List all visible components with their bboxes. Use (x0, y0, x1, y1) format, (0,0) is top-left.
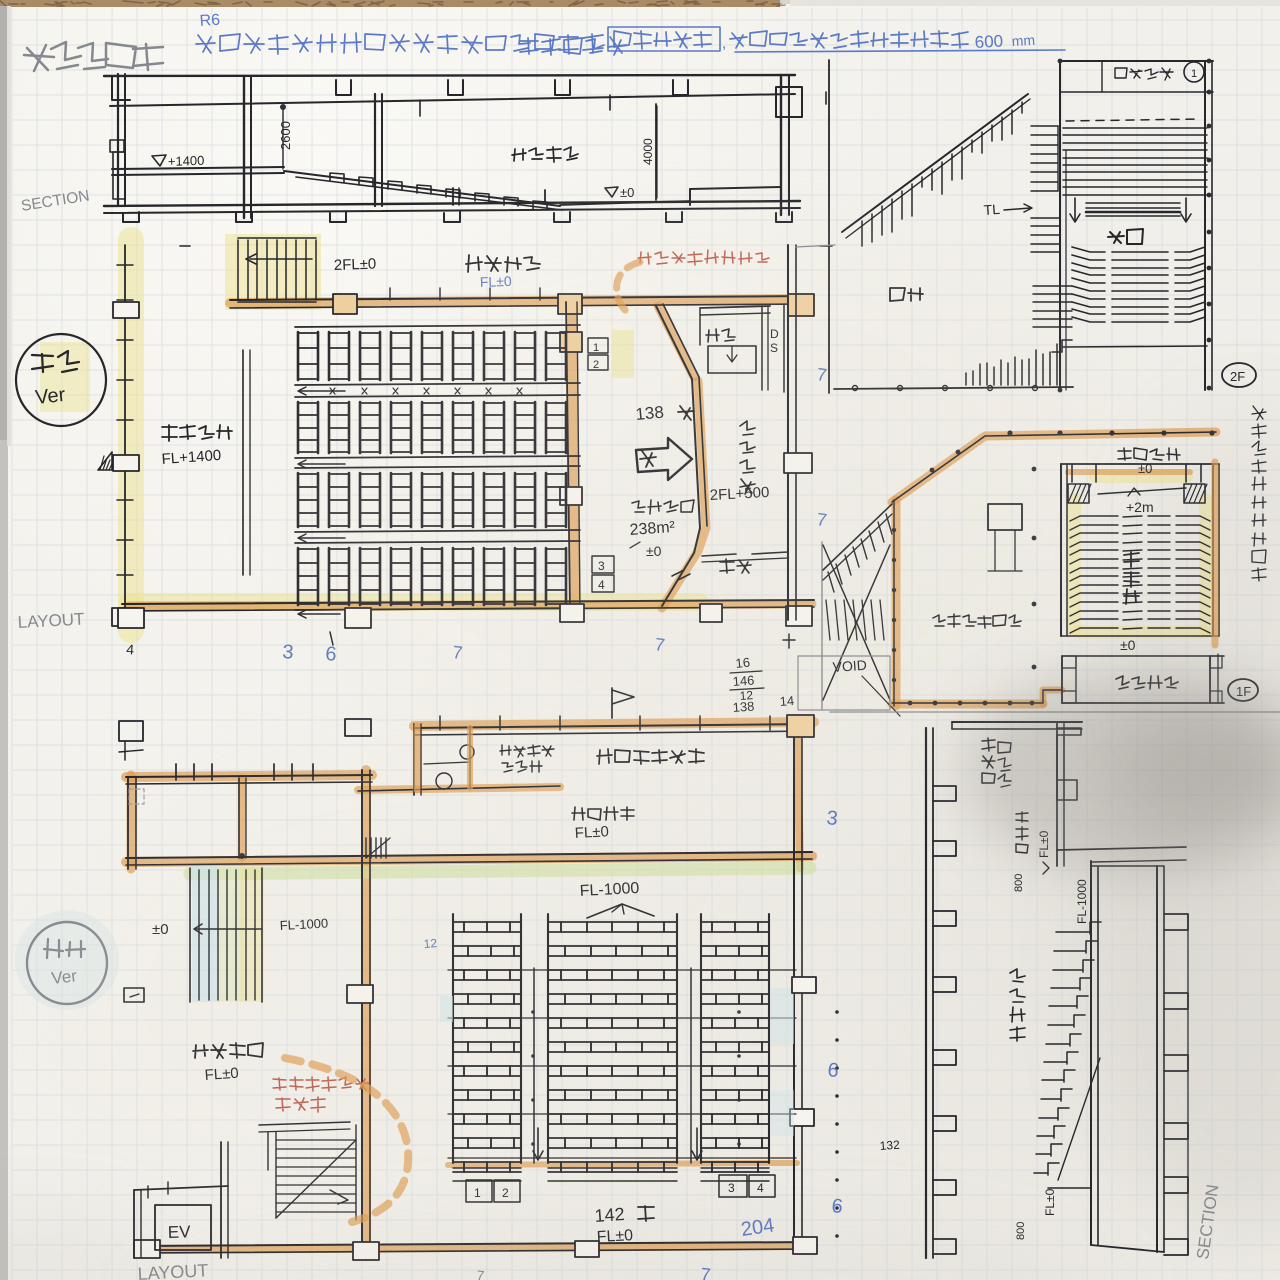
svg-text:2FL±0: 2FL±0 (334, 256, 377, 274)
svg-text:2600: 2600 (278, 121, 293, 150)
svg-text:3: 3 (825, 807, 838, 830)
svg-text:+1400: +1400 (168, 153, 205, 169)
svg-text:600: 600 (974, 32, 1003, 52)
svg-text:6: 6 (830, 1195, 843, 1218)
svg-text:±0: ±0 (1138, 461, 1152, 476)
svg-text:4: 4 (126, 641, 135, 658)
svg-text:LAYOUT: LAYOUT (17, 610, 85, 632)
svg-text:4000: 4000 (641, 138, 655, 165)
svg-text:3: 3 (728, 1181, 735, 1195)
svg-text:R6: R6 (199, 12, 221, 30)
svg-text:1: 1 (1191, 68, 1197, 80)
svg-text:3: 3 (282, 641, 295, 664)
svg-text:TL: TL (983, 201, 1001, 218)
svg-text:6: 6 (826, 1059, 839, 1082)
svg-text:,: , (722, 35, 726, 52)
svg-text:FL±0: FL±0 (1043, 1188, 1057, 1216)
svg-text:800: 800 (1015, 1222, 1027, 1240)
svg-text:800: 800 (1013, 874, 1025, 892)
svg-text:mm: mm (1011, 32, 1035, 49)
svg-text:EV: EV (167, 1222, 191, 1242)
svg-text:132: 132 (879, 1138, 900, 1153)
svg-text:4: 4 (757, 1181, 764, 1195)
svg-text:FL-1000: FL-1000 (1075, 879, 1089, 924)
svg-text:Ver: Ver (34, 384, 66, 409)
svg-text:2F: 2F (1230, 369, 1245, 384)
svg-text:±0: ±0 (620, 185, 634, 200)
